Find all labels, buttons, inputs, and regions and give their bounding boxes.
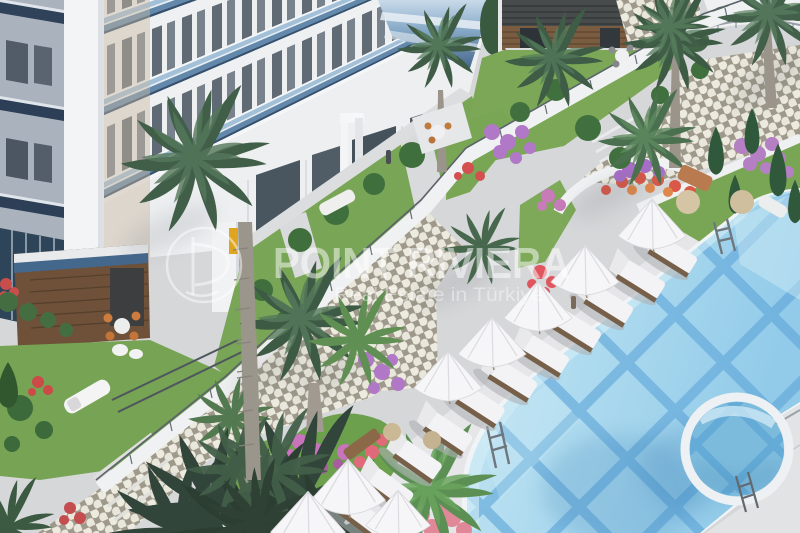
svg-text:POINT RIVIERA: POINT RIVIERA bbox=[273, 239, 570, 288]
svg-text:Real Estate in Türkiye: Real Estate in Türkiye bbox=[334, 285, 543, 306]
